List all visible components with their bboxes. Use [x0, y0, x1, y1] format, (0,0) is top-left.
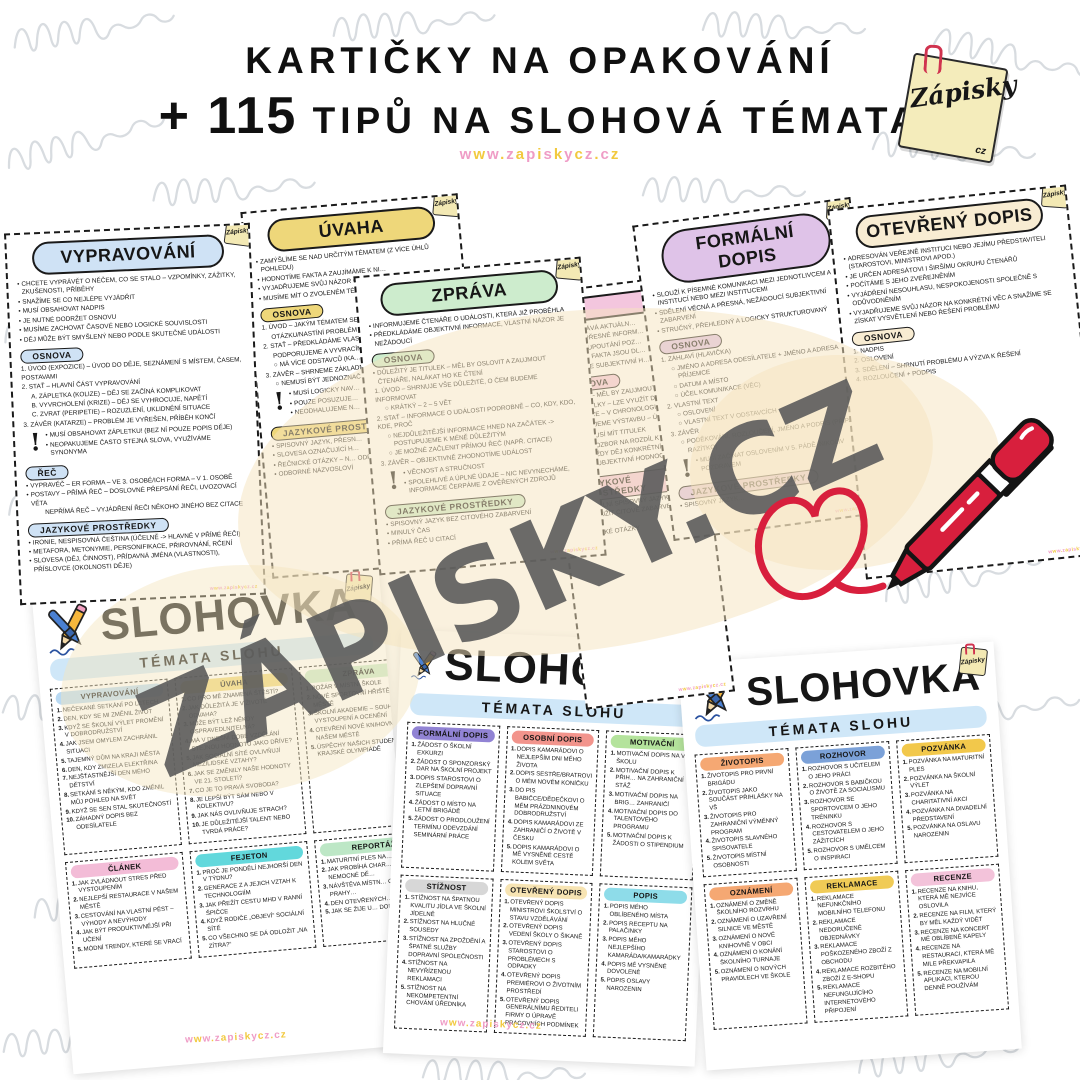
exclamation-icon: !	[680, 458, 693, 480]
topic-list: POPIS MÉHO OBLÍBENÉHO MÍSTAPOPIS RECEPTU…	[600, 903, 686, 996]
bullet-icon: •	[272, 452, 275, 461]
topic-box: OSOBNÍ DOPISDOPIS KAMARÁDOVI O NEJLEPŠÍM…	[501, 726, 600, 876]
bullet-icon: •	[387, 540, 390, 549]
topic-list: DOPIS KAMARÁDOVI O NEJLEPŠÍM DNI MÉHO ŽI…	[506, 746, 594, 870]
topic-list: CO PRO MĚ ZNAMENÁ ŠTĚSTÍ?JAK DŮLEŽITÁ JE…	[181, 688, 301, 838]
topic-item: STÍŽNOST NA NEKOMPETENTNÍ CHOVÁNÍ ÚŘEDNÍ…	[400, 984, 484, 1011]
topic-list: OTEVŘENÝ DOPIS MINISTROVI ŠKOLSTVÍ O STA…	[499, 899, 587, 1031]
slohovka-sheet: Zápisky SLOHOVKATÉMATA SLOHUŽIVOTOPISŽIV…	[678, 641, 1022, 1070]
card-title: VYPRAVOVÁNÍ	[31, 234, 225, 275]
paperclip-icon	[923, 44, 943, 74]
bullet-icon: •	[652, 292, 655, 301]
topic-item: OTEVŘENÝ DOPIS STAROSTOVI O PROBLÉMECH S…	[501, 940, 585, 975]
url-char: y	[564, 146, 574, 163]
topic-list: ŽÁDOST O ŠKOLNÍ EXKURZIŽÁDOST O SPONZORS…	[407, 742, 494, 843]
topic-box: ROZHOVORROZHOVOR S UČITELEM O JEHO PRÁCI…	[795, 741, 897, 870]
topic-box: FORMÁLNÍ DOPISŽÁDOST O ŠKOLNÍ EXKURZIŽÁD…	[401, 722, 500, 872]
bullet-icon: ○	[385, 405, 390, 414]
url-char: z	[536, 1021, 542, 1032]
topic-item: DOPIS STAROSTOVI O ZLEPŠENÍ DOPRAVNÍ SIT…	[409, 775, 493, 802]
url-char: w	[440, 1017, 449, 1028]
topic-item: POPIS MÉHO NEJLEPŠÍHO KAMARÁDA/KAMARÁDKY	[601, 937, 685, 964]
topic-item: MOTIVAČNÍ DOPIS K ŽÁDOSTI O STIPENDIUM	[606, 833, 689, 852]
bullet-icon: •	[19, 318, 22, 327]
topic-item: OTEVŘENÝ DOPIS MINISTROVI ŠKOLSTVÍ O STA…	[503, 899, 587, 926]
exclamation-icon: !	[273, 392, 285, 413]
bullet-icon: •	[369, 323, 372, 332]
topic-box: POPISPOPIS MÉHO OBLÍBENÉHO MÍSTAPOPIS RE…	[593, 883, 692, 1041]
bullet-icon: ○	[677, 411, 682, 420]
bullet-icon: •	[26, 482, 29, 491]
url-char: w	[449, 1018, 458, 1029]
topic-title: OSOBNÍ DOPIS	[511, 730, 594, 747]
topics-grid: VYPRAVOVÁNÍNEČEKANÉ SETKÁNÍ PO LETECHDEN…	[50, 660, 401, 968]
topic-list: ROZHOVOR S UČITELEM O JEHO PRÁCIROZHOVOR…	[802, 761, 893, 864]
site-url: www.zapiskycz.cz	[210, 584, 258, 592]
logo-text: Zápisky	[557, 261, 582, 272]
url-char: w	[487, 146, 500, 163]
bullet-icon: •	[29, 558, 32, 567]
bullet-icon: •	[274, 471, 277, 480]
topic-list: ŽIVOTOPIS PRO PRVNÍ BRIGÁDUŽIVOTOPIS JAK…	[701, 768, 792, 871]
bullet-icon: •	[257, 277, 260, 286]
warning-block: !•MUSÍ OBSAHOVAT ZÁPLETKU! (BEZ NÍ POUZE…	[30, 423, 249, 460]
bullet-icon: •	[843, 256, 846, 265]
topic-item: STÍŽNOST NA NEVYŘÍZENOU REKLAMACI	[401, 960, 485, 987]
bullet-icon: ○	[387, 432, 392, 441]
exclamation-icon: !	[30, 432, 41, 453]
bullet-icon: ○	[673, 383, 678, 392]
bullet-icon: ○	[674, 392, 679, 401]
topic-list: NEČEKANÉ SETKÁNÍ PO LETECHDEN, KDY SE MI…	[57, 699, 176, 834]
logo-text: Zápisky	[961, 656, 986, 666]
topic-list: REKLAMACE NEFUNKČNÍHO MOBILNÍHO TELEFONU…	[811, 891, 903, 1018]
topic-box: VYPRAVOVÁNÍNEČEKANÉ SETKÁNÍ PO LETECHDEN…	[50, 679, 182, 855]
pen-pencil-icon	[42, 601, 98, 657]
poster-page: KARTIČKY NA OPAKOVÁNÍ + 115 TIPŮ NA SLOH…	[0, 0, 1080, 1080]
bullet-icon: •	[654, 310, 657, 319]
bullet-icon: •	[18, 308, 21, 317]
url-char: s	[543, 146, 553, 163]
topic-list: OZNÁMENÍ O ZMĚNĚ ŠKOLNÍHO ROZVRHUOZNÁMEN…	[710, 898, 800, 986]
url-char: c	[575, 146, 585, 163]
url-char: k	[554, 146, 564, 163]
bullet-icon: •	[259, 296, 262, 305]
section-pill: ŘEČ	[25, 465, 69, 481]
bullet-icon: •	[290, 410, 293, 419]
topics-grid: FORMÁLNÍ DOPISŽÁDOST O ŠKOLNÍ EXKURZIŽÁD…	[394, 722, 699, 1041]
bullet-icon: •	[28, 539, 31, 548]
section-pill: OSNOVA	[20, 347, 84, 364]
logo-text: Zápisky	[434, 197, 459, 208]
sticky-note-icon: Zápisky	[1041, 184, 1070, 208]
site-url: www.zapiskycz.cz	[678, 681, 726, 693]
bullet-icon: •	[20, 337, 23, 346]
topic-box: ČLÁNEKJAK ZVLÁDNOUT STRES PŘED VYSTOUPEN…	[65, 851, 192, 968]
bullet-icon: •	[680, 502, 683, 511]
logo-text: Zápisky	[908, 72, 1003, 114]
card-zpr-va: ZápiskyZPRÁVA•INFORMUJEME ČTENÁŘE O UDÁL…	[353, 257, 606, 576]
bullet-icon: •	[45, 432, 48, 441]
bullet-icon: •	[256, 259, 259, 268]
url-char: z	[280, 1029, 287, 1040]
topic-item: DOPIS KAMARÁDOVI O NEJLEPŠÍM DNI MÉHO ŽI…	[510, 746, 594, 773]
topic-box: REKLAMACEREKLAMACE NEFUNKČNÍHO MOBILNÍHO…	[804, 870, 908, 1022]
topic-box: RECENZERECENZE NA KNIHU, KTERÁ MĚ NEJVÍC…	[905, 863, 1009, 1015]
topic-item: POPIS OSLAVY NAROZENIN	[600, 978, 683, 997]
warning-lines: •MUSÍ LOGICKY NAV…•POUZE POSUZUJE…•NEODH…	[289, 385, 362, 419]
topic-box: ÚVAHACO PRO MĚ ZNAMENÁ ŠTĚSTÍ?JAK DŮLEŽI…	[174, 668, 306, 844]
topic-title: STÍŽNOST	[405, 879, 488, 896]
url-char: w	[473, 146, 487, 163]
logo-text: Zápisky	[1043, 189, 1068, 200]
bullet-icon: •	[272, 443, 275, 452]
bullet-icon: •	[17, 281, 20, 290]
bullet-icon: •	[846, 283, 849, 292]
bullet-icon: •	[29, 549, 32, 558]
bullet-icon: •	[18, 299, 21, 308]
topic-title: FORMÁLNÍ DOPIS	[412, 726, 495, 743]
bullet-icon: •	[696, 457, 699, 466]
topic-box: POZVÁNKAPOZVÁNKA NA MATURITNÍ PLESPOZVÁN…	[896, 734, 998, 863]
topic-box: FEJETONPROČ JE PONDĚLÍ NEJHORŠÍ DEN V TÝ…	[189, 841, 316, 958]
topic-item: MOTIVAČNÍ DOPIS DO TALENTOVÉHO PROGRAMU	[607, 808, 691, 835]
bullet-icon: •	[19, 327, 22, 336]
topic-box: OZNÁMENÍOZNÁMENÍ O ZMĚNĚ ŠKOLNÍHO ROZVRH…	[704, 877, 808, 1029]
bullet-icon: •	[849, 310, 852, 319]
topic-item: STÍŽNOST NA ZPOŽDĚNÍ A ŠPATNÉ SLUŽBY DOP…	[402, 936, 486, 963]
bullet-icon: •	[369, 333, 372, 342]
sticky-note-icon: Zápisky	[958, 647, 988, 677]
bullet-icon: •	[290, 400, 293, 409]
sticky-note-icon: Zápisky	[344, 573, 373, 602]
warning-lines: •MUSÍ OBSAHOVAT ZÁPLETKU! (BEZ NÍ POUZE …	[45, 423, 248, 459]
bullet-icon: •	[258, 286, 261, 295]
url-char: z	[723, 681, 727, 687]
bullet-icon: ○	[678, 420, 683, 429]
logo-text: Zápisky	[346, 583, 371, 594]
bullet-icon: ○	[274, 362, 279, 371]
topic-box: OTEVŘENÝ DOPISOTEVŘENÝ DOPIS MINISTROVI …	[494, 879, 593, 1037]
slohovka-sheet: Zápisky SLOHOVKATÉMATA SLOHUVYPRAVOVÁNÍN…	[32, 568, 420, 1075]
exclamation-icon: !	[387, 471, 399, 492]
bullet-icon: •	[847, 293, 850, 302]
topic-item: DOPIS KAMARÁDOVI ZE ZAHRANIČÍ O ŽIVOTĚ V…	[507, 819, 591, 846]
topic-item: DO PIS BABIČCE/DĚDEČKOVI O MÉM PRÁZDNINO…	[508, 787, 592, 822]
site-url: www.zapiskycz.cz	[1048, 544, 1080, 555]
topic-list: POZVÁNKA NA MATURITNÍ PLESPOZVÁNKA NA ŠK…	[902, 754, 992, 842]
topic-title: POPIS	[604, 887, 687, 904]
topic-list: JAK ZVLÁDNOUT STRES PŘED VYSTOUPENÍMNEJL…	[72, 872, 186, 955]
title-rest: TIPŮ NA SLOHOVÁ TÉMATA	[313, 100, 922, 141]
topic-title: MOTIVAČNÍ	[611, 735, 694, 752]
topic-item: OTEVŘENÝ DOPIS PREMIÉROVI O ŽIVOTNÍM PRO…	[500, 972, 584, 999]
bullet-icon: ○	[389, 450, 394, 459]
bullet-icon: •	[403, 470, 406, 479]
topic-title: ZPRÁVA	[304, 661, 413, 683]
topic-item: STÍŽNOST NA ŠPATNOU KVALITU JÍDLA VE ŠKO…	[404, 895, 488, 922]
bullet-icon: •	[845, 274, 848, 283]
card-vypravov-n-: ZápiskyVYPRAVOVÁNÍ•CHCETE VYPRÁVĚT O NĚČ…	[4, 223, 266, 605]
bullet-icon: •	[404, 479, 407, 488]
url-char: z	[255, 584, 258, 590]
bullet-icon: •	[289, 391, 292, 400]
topic-box: STÍŽNOSTSTÍŽNOST NA ŠPATNOU KVALITU JÍDL…	[394, 875, 493, 1033]
url-char: a	[516, 146, 526, 163]
topic-item: RECENZE NA MOBILNÍ APLIKACI, KTEROU DENN…	[917, 965, 1002, 994]
site-url: www.zapiskycz.cz	[550, 545, 598, 555]
url-char: z	[595, 545, 598, 551]
topic-item: MOTIVAČNÍ DOPIS K PŘIH… NA ZAHRANIČNÍ ST…	[609, 767, 693, 794]
topic-list: MOTIVAČNÍ DOPIS NA V… ŠKOLUMOTIVAČNÍ DOP…	[606, 751, 693, 852]
card-otev-en-dopis: ZápiskyOTEVŘENÝ DOPIS•ADRESOVÁN VEŘEJNĚ …	[827, 184, 1080, 579]
logo-suffix: cz	[975, 145, 987, 158]
bullet-icon: •	[657, 328, 660, 337]
bullet-icon: •	[387, 531, 390, 540]
topic-list: STÍŽNOST NA ŠPATNOU KVALITU JÍDLA VE ŠKO…	[400, 895, 488, 1012]
topic-box: ŽIVOTOPISŽIVOTOPIS PRO PRVNÍ BRIGÁDUŽIVO…	[695, 748, 797, 877]
topic-item: ŽÁDOST O PRODLOUŽENÍ TERMÍNU ODEVZDÁNÍ S…	[407, 816, 491, 843]
topics-grid: ŽIVOTOPISŽIVOTOPIS PRO PRVNÍ BRIGÁDUŽIVO…	[695, 734, 1009, 1029]
topic-title: OTEVŘENÝ DOPIS	[505, 883, 588, 900]
sticky-note-icon: Zápisky	[224, 223, 254, 247]
bullet-icon: •	[386, 521, 389, 530]
bullet-icon: •	[373, 370, 376, 379]
sticky-note-icon: Zápisky	[432, 193, 461, 217]
url-char: z	[611, 146, 621, 163]
bullet-icon: •	[46, 442, 49, 451]
bullet-icon: •	[26, 492, 29, 501]
url-char: c	[601, 146, 611, 163]
logo-text: Zápisky	[226, 227, 251, 237]
bullet-icon: •	[273, 462, 276, 471]
url-char: z	[506, 146, 516, 163]
topic-item: REKLAMACE NEFUNGUJÍCÍHO INTERNETOVÉHO PŘ…	[817, 980, 903, 1017]
url-char: w	[460, 146, 474, 163]
title-count: + 115	[159, 87, 298, 145]
url-char: p	[526, 146, 537, 163]
zapisky-sticky-note: Zápisky cz	[897, 52, 1008, 163]
topic-list: RECENZE NA KNIHU, KTERÁ MĚ NEJVÍCE OSLOV…	[911, 883, 1002, 994]
topic-item: DOPIS KAMARÁDOVI O MÉ VYSNĚNÉ CESTĚ KOLE…	[506, 844, 590, 871]
topic-list: PROČ JE PONDĚLÍ NEJHORŠÍ DEN V TÝDNU?GEN…	[196, 861, 311, 952]
sticky-note-icon: Zápisky	[555, 257, 584, 281]
pen-pencil-icon	[409, 638, 442, 691]
sheet-title: SLOHOVKA	[745, 654, 982, 715]
bullet-icon: ○	[671, 365, 676, 374]
bullet-icon: ○	[681, 439, 686, 448]
url-char: z	[585, 146, 595, 163]
